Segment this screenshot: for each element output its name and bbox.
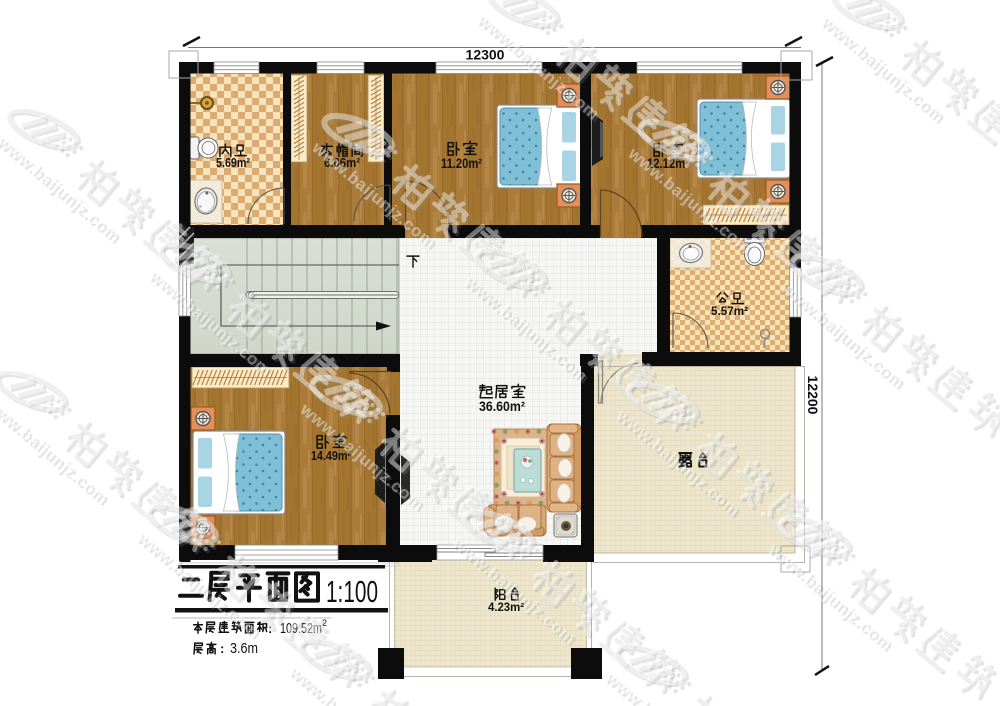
svg-text:12300: 12300 (466, 47, 505, 63)
svg-text::: : (220, 641, 224, 656)
svg-text:5.69m²: 5.69m² (216, 155, 251, 170)
svg-text:12200: 12200 (805, 376, 821, 415)
svg-text:36.60m²: 36.60m² (479, 398, 525, 414)
svg-text:5.57m²: 5.57m² (711, 304, 748, 318)
svg-text:11.20m²: 11.20m² (441, 155, 482, 171)
svg-text:1:100: 1:100 (326, 574, 378, 609)
